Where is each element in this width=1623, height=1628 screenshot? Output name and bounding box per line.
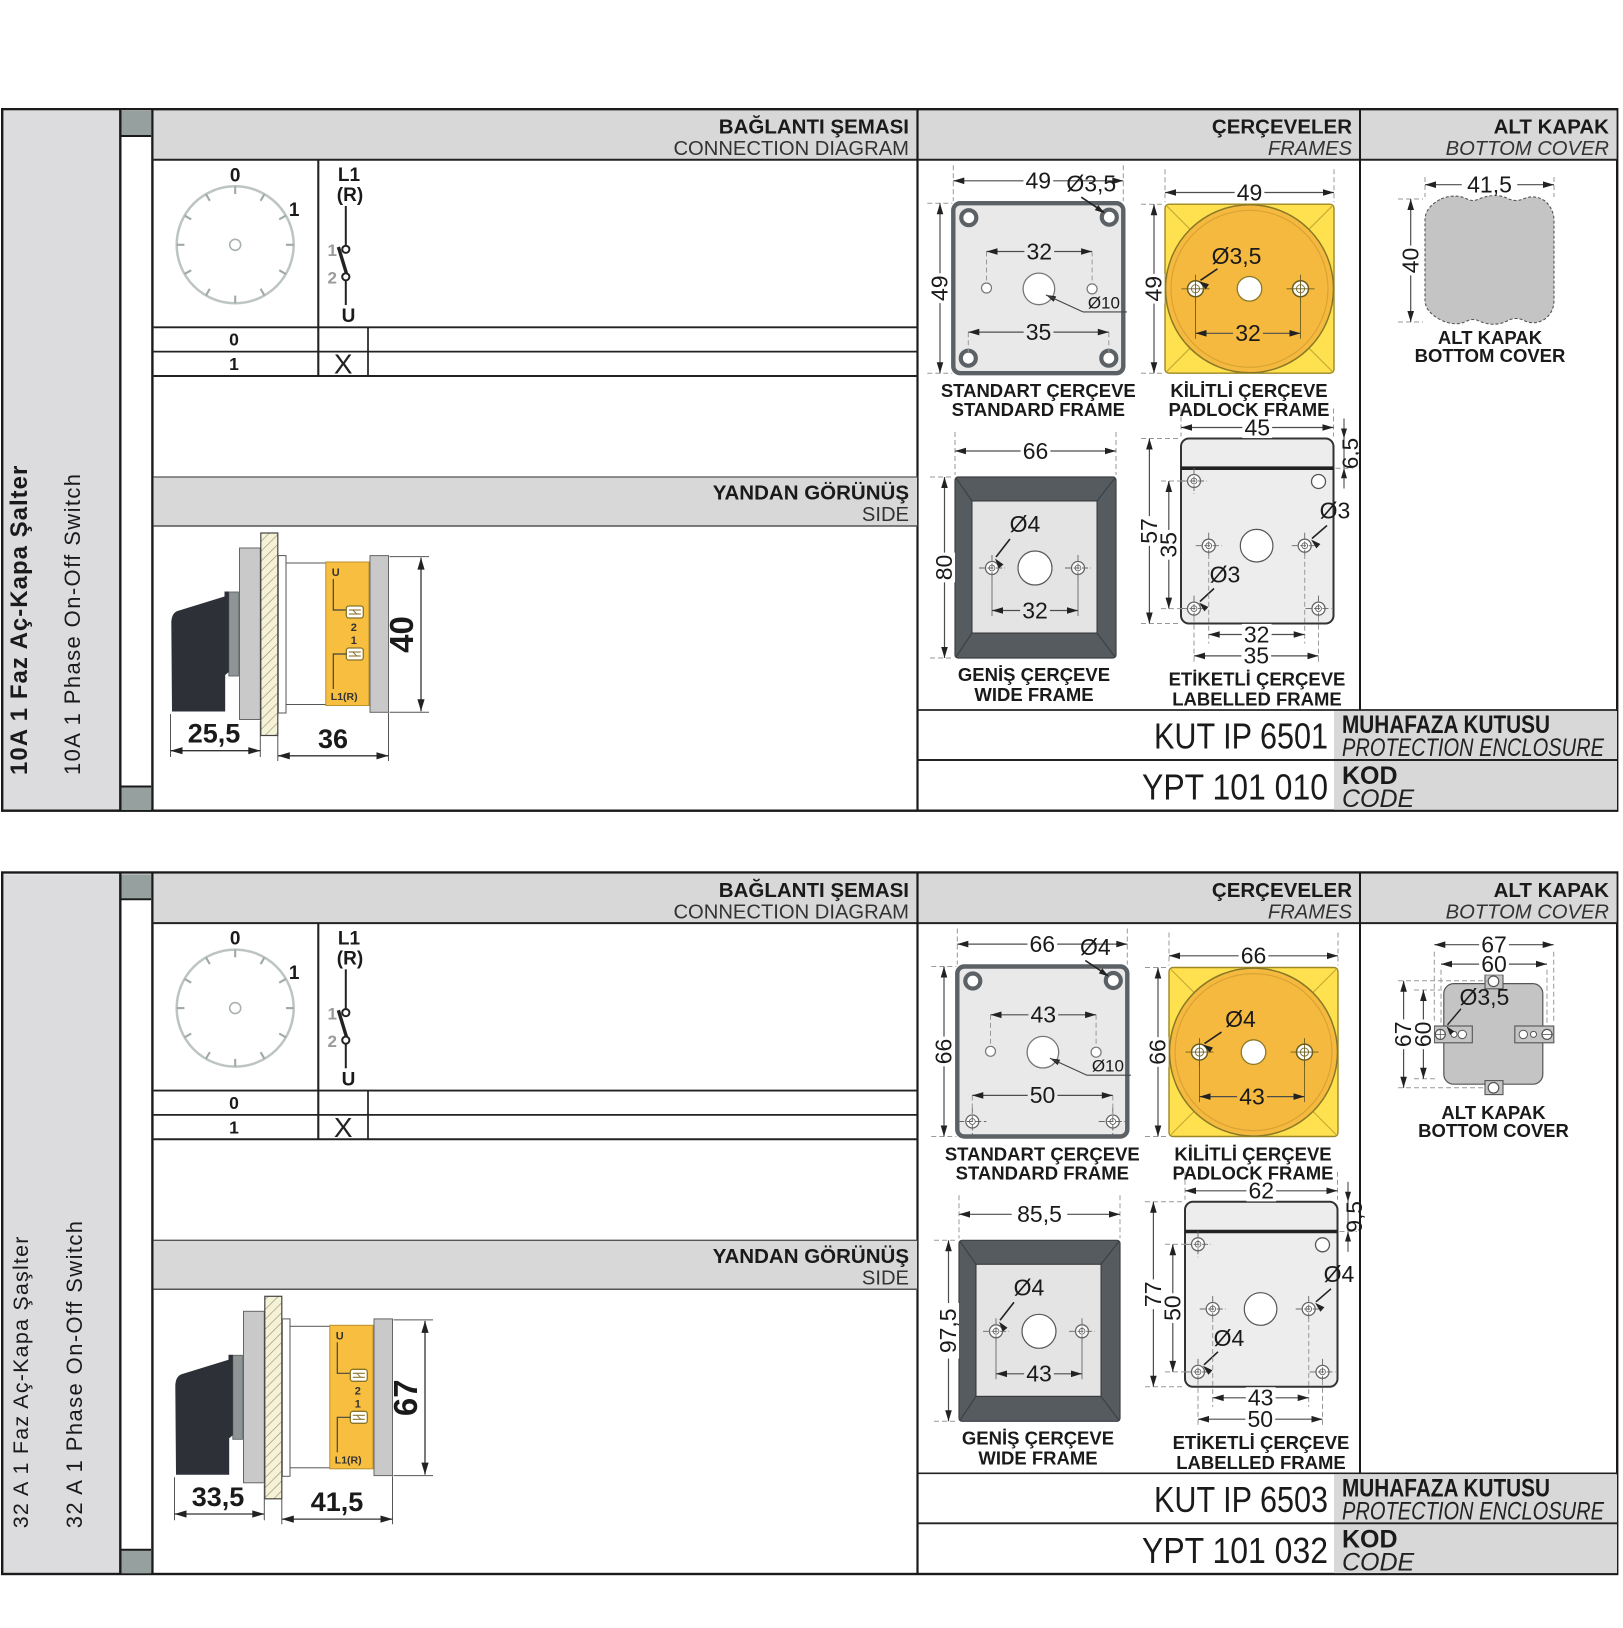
svg-text:60: 60	[1410, 1022, 1436, 1048]
svg-text:Ø4: Ø4	[1214, 1325, 1245, 1351]
svg-text:U: U	[342, 306, 356, 327]
svg-text:GENİŞ ÇERÇEVE: GENİŞ ÇERÇEVE	[958, 664, 1110, 685]
svg-text:(R): (R)	[337, 948, 363, 969]
svg-text:36: 36	[318, 724, 348, 754]
svg-text:41,5: 41,5	[311, 1487, 364, 1517]
svg-text:Ø3,5: Ø3,5	[1459, 984, 1509, 1010]
svg-text:66: 66	[1030, 931, 1056, 957]
svg-text:L1: L1	[338, 928, 361, 949]
svg-text:WIDE FRAME: WIDE FRAME	[978, 1447, 1097, 1468]
svg-text:Ø3,5: Ø3,5	[1212, 243, 1262, 269]
svg-text:2: 2	[328, 1032, 337, 1051]
svg-text:Ø3: Ø3	[1210, 562, 1241, 588]
svg-text:SIDE: SIDE	[862, 1267, 909, 1289]
svg-text:25,5: 25,5	[188, 719, 241, 749]
svg-text:WIDE FRAME: WIDE FRAME	[974, 684, 1093, 705]
svg-text:35: 35	[1155, 532, 1181, 558]
svg-text:40: 40	[383, 616, 420, 653]
svg-text:32: 32	[1022, 597, 1048, 623]
svg-text:BOTTOM COVER: BOTTOM COVER	[1415, 345, 1566, 366]
svg-text:CONNECTION DIAGRAM: CONNECTION DIAGRAM	[673, 901, 909, 923]
svg-text:Ø4: Ø4	[1225, 1006, 1256, 1032]
svg-text:ALT KAPAK: ALT KAPAK	[1494, 116, 1610, 139]
svg-text:ALT KAPAK: ALT KAPAK	[1494, 879, 1610, 902]
svg-text:62: 62	[1248, 1178, 1274, 1204]
svg-text:40: 40	[1397, 248, 1423, 274]
svg-text:1: 1	[289, 200, 300, 221]
svg-text:ÇERÇEVELER: ÇERÇEVELER	[1212, 879, 1352, 902]
svg-text:STANDART ÇERÇEVE: STANDART ÇERÇEVE	[945, 1144, 1140, 1165]
svg-text:Ø4: Ø4	[1324, 1261, 1355, 1287]
svg-text:1: 1	[355, 1398, 361, 1410]
svg-text:Ø10: Ø10	[1092, 1057, 1124, 1076]
svg-text:41,5: 41,5	[1467, 172, 1512, 198]
svg-text:0: 0	[229, 1093, 239, 1113]
svg-text:STANDARD FRAME: STANDARD FRAME	[952, 399, 1125, 420]
svg-text:LABELLED FRAME: LABELLED FRAME	[1176, 1452, 1346, 1473]
svg-text:YPT 101 032: YPT 101 032	[1142, 1530, 1328, 1571]
svg-text:Ø3: Ø3	[1320, 498, 1351, 524]
svg-text:45: 45	[1244, 414, 1270, 440]
svg-text:66: 66	[1241, 943, 1267, 969]
svg-text:SIDE: SIDE	[862, 504, 909, 526]
svg-text:32: 32	[1235, 320, 1261, 346]
svg-text:85,5: 85,5	[1017, 1201, 1062, 1227]
svg-text:U: U	[336, 1330, 344, 1342]
svg-text:L1(R): L1(R)	[335, 1454, 362, 1466]
svg-text:L1: L1	[338, 165, 361, 186]
svg-text:66: 66	[1023, 438, 1049, 464]
svg-text:GENİŞ ÇERÇEVE: GENİŞ ÇERÇEVE	[962, 1427, 1114, 1448]
svg-text:0: 0	[230, 165, 241, 186]
svg-text:Ø4: Ø4	[1010, 511, 1041, 537]
svg-text:2: 2	[355, 1385, 361, 1397]
svg-text:STANDART ÇERÇEVE: STANDART ÇERÇEVE	[941, 380, 1136, 401]
svg-text:6,5: 6,5	[1338, 438, 1363, 469]
svg-text:BAĞLANTI ŞEMASI: BAĞLANTI ŞEMASI	[719, 115, 909, 139]
svg-text:L1(R): L1(R)	[331, 691, 358, 703]
svg-text:0: 0	[230, 929, 241, 950]
svg-text:STANDARD FRAME: STANDARD FRAME	[956, 1163, 1129, 1184]
svg-text:YPT 101 010: YPT 101 010	[1142, 767, 1328, 808]
svg-text:2: 2	[328, 269, 337, 288]
svg-text:43: 43	[1239, 1083, 1265, 1109]
svg-text:50: 50	[1159, 1295, 1185, 1321]
svg-text:9,5: 9,5	[1342, 1201, 1367, 1232]
svg-text:X: X	[334, 349, 353, 380]
svg-text:49: 49	[1237, 179, 1263, 205]
svg-text:66: 66	[1145, 1039, 1171, 1065]
svg-text:(R): (R)	[337, 185, 363, 206]
svg-text:U: U	[332, 567, 340, 579]
svg-text:67: 67	[387, 1379, 424, 1416]
svg-text:ÇERÇEVELER: ÇERÇEVELER	[1212, 116, 1352, 139]
svg-text:KİLİTLİ ÇERÇEVE: KİLİTLİ ÇERÇEVE	[1170, 380, 1327, 401]
svg-text:66: 66	[931, 1039, 957, 1065]
svg-text:10A 1 Faz Aç-Kapa Şalter: 10A 1 Faz Aç-Kapa Şalter	[6, 465, 33, 775]
svg-text:97,5: 97,5	[935, 1308, 961, 1353]
svg-text:KİLİTLİ ÇERÇEVE: KİLİTLİ ÇERÇEVE	[1174, 1144, 1331, 1165]
svg-text:YANDAN GÖRÜNÜŞ: YANDAN GÖRÜNÜŞ	[713, 482, 909, 505]
svg-text:LABELLED FRAME: LABELLED FRAME	[1172, 689, 1342, 710]
svg-text:1: 1	[328, 241, 337, 260]
svg-text:60: 60	[1481, 951, 1507, 977]
svg-text:CODE: CODE	[1342, 1548, 1415, 1576]
svg-text:CONNECTION DIAGRAM: CONNECTION DIAGRAM	[673, 138, 909, 160]
svg-text:33,5: 33,5	[192, 1482, 245, 1512]
svg-text:35: 35	[1243, 643, 1269, 669]
svg-text:Ø10: Ø10	[1088, 293, 1120, 312]
svg-text:FRAMES: FRAMES	[1268, 901, 1353, 923]
svg-text:32 A 1 Phase On-Off Switch: 32 A 1 Phase On-Off Switch	[62, 1220, 87, 1529]
svg-text:10A 1 Phase On-Off Switch: 10A 1 Phase On-Off Switch	[60, 473, 85, 775]
svg-text:32 A 1 Faz Aç-Kapa Şaşlter: 32 A 1 Faz Aç-Kapa Şaşlter	[9, 1235, 33, 1528]
svg-text:43: 43	[1026, 1361, 1052, 1387]
svg-text:32: 32	[1027, 238, 1053, 264]
svg-text:0: 0	[229, 330, 239, 350]
svg-text:PROTECTION ENCLOSURE: PROTECTION ENCLOSURE	[1342, 734, 1604, 762]
svg-text:FRAMES: FRAMES	[1268, 138, 1353, 160]
svg-text:CODE: CODE	[1342, 785, 1415, 813]
svg-text:43: 43	[1031, 1002, 1057, 1028]
svg-text:1: 1	[229, 354, 239, 374]
svg-text:BOTTOM COVER: BOTTOM COVER	[1446, 901, 1609, 923]
svg-text:49: 49	[927, 275, 953, 301]
svg-text:ETİKETLİ ÇERÇEVE: ETİKETLİ ÇERÇEVE	[1173, 1432, 1350, 1453]
svg-text:Ø3,5: Ø3,5	[1066, 171, 1116, 197]
svg-text:Ø4: Ø4	[1014, 1274, 1045, 1300]
svg-text:BOTTOM COVER: BOTTOM COVER	[1446, 138, 1609, 160]
svg-text:U: U	[342, 1069, 356, 1090]
svg-text:KUT IP 6501: KUT IP 6501	[1154, 716, 1328, 757]
svg-text:PROTECTION ENCLOSURE: PROTECTION ENCLOSURE	[1342, 1497, 1604, 1525]
svg-text:50: 50	[1030, 1082, 1056, 1108]
svg-text:1: 1	[229, 1117, 239, 1137]
svg-text:1: 1	[351, 635, 357, 647]
svg-text:2: 2	[351, 622, 357, 634]
svg-text:80: 80	[931, 555, 957, 581]
svg-text:X: X	[334, 1112, 353, 1143]
svg-text:49: 49	[1141, 276, 1167, 302]
svg-text:KUT IP 6503: KUT IP 6503	[1154, 1479, 1328, 1520]
svg-text:ETİKETLİ ÇERÇEVE: ETİKETLİ ÇERÇEVE	[1169, 669, 1346, 690]
svg-text:BOTTOM COVER: BOTTOM COVER	[1418, 1120, 1569, 1141]
svg-text:49: 49	[1026, 168, 1052, 194]
svg-text:Ø4: Ø4	[1080, 934, 1111, 960]
svg-text:YANDAN GÖRÜNÜŞ: YANDAN GÖRÜNÜŞ	[713, 1245, 909, 1268]
svg-text:1: 1	[289, 963, 300, 984]
svg-text:50: 50	[1247, 1406, 1273, 1432]
svg-text:35: 35	[1026, 319, 1052, 345]
svg-text:1: 1	[328, 1004, 337, 1023]
svg-text:BAĞLANTI ŞEMASI: BAĞLANTI ŞEMASI	[719, 878, 909, 902]
